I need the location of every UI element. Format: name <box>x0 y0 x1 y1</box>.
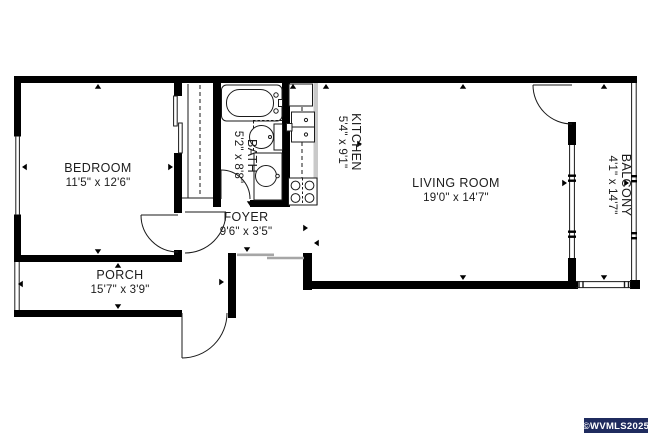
left-wall-upper <box>14 83 21 133</box>
balcony-sliding-window <box>568 145 576 258</box>
top-wall <box>14 76 637 83</box>
bedroom-right-wall-mid <box>174 153 182 213</box>
foyer-label: FOYER <box>223 210 268 224</box>
living-room-label: LIVING ROOM <box>412 176 500 190</box>
sliding-door-panel-icon <box>174 96 178 126</box>
bathtub-icon <box>222 85 283 121</box>
bedroom-bottom-wall <box>14 255 182 262</box>
window-cap <box>14 215 21 219</box>
window-cap <box>14 133 21 137</box>
living-bottom-wall <box>303 281 578 289</box>
porch-bottom-wall <box>14 310 182 317</box>
bedroom-label: BEDROOM <box>64 161 131 175</box>
porch-right-wall <box>228 253 236 318</box>
bedroom-window <box>14 133 21 218</box>
balcony-wall-upper <box>568 122 576 145</box>
balcony-bottom-corner <box>630 280 640 289</box>
floor-plan-page: BEDROOM 11'5" x 12'6" LIVING ROOM 19'0" … <box>0 0 650 434</box>
foyer-window <box>237 255 304 258</box>
stove-icon <box>289 178 318 205</box>
kitchen-dims: 5'4" x 9'1" <box>336 116 348 168</box>
floor-plan-canvas: BEDROOM 11'5" x 12'6" LIVING ROOM 19'0" … <box>0 0 650 434</box>
bedroom-right-wall-top <box>174 83 182 96</box>
balcony-wall-lower <box>568 258 576 288</box>
foyer-dims: 9'6" x 3'5" <box>220 226 272 238</box>
porch-dims: 15'7" x 3'9" <box>90 284 149 296</box>
watermark-text: ©WVMLS2025 <box>583 421 650 432</box>
bath-label: BATH <box>245 139 259 173</box>
balcony-door-swing <box>533 85 572 124</box>
kitchen-fixtures <box>287 83 319 205</box>
watermark-badge: ©WVMLS2025 <box>583 418 650 433</box>
bath-left-wall <box>213 83 221 207</box>
kitchen-label: KITCHEN <box>349 113 363 171</box>
kitchen-sink-icon <box>287 112 315 142</box>
bath-dims: 5'2" x 8'8" <box>232 131 244 183</box>
bedroom-dims: 11'5" x 12'6" <box>66 177 131 189</box>
sliding-door-panel-icon <box>179 123 183 153</box>
balcony-bottom-rail <box>576 281 631 288</box>
porch-left-rail <box>15 262 19 310</box>
balcony-label: BALCONY <box>619 154 633 217</box>
living-room-dims: 19'0" x 14'7" <box>423 192 489 204</box>
balcony-dims: 4'1" x 14'7" <box>606 155 618 214</box>
porch-door-swing <box>182 313 227 358</box>
bedroom-door-swing <box>141 215 178 252</box>
porch-label: PORCH <box>96 268 143 282</box>
room-labels: BEDROOM 11'5" x 12'6" LIVING ROOM 19'0" … <box>64 113 633 296</box>
